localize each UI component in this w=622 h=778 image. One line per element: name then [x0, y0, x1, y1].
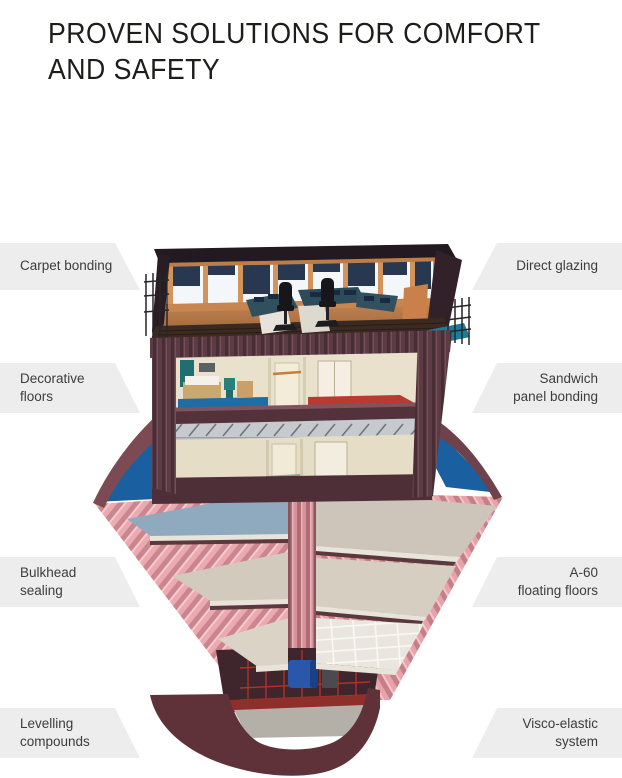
callout-label: system — [555, 733, 598, 752]
cabin-chair-base — [226, 390, 233, 399]
callout-label: Carpet bonding — [20, 257, 140, 276]
callout-label: floating floors — [518, 582, 598, 601]
accommodation-wall-left — [152, 338, 176, 494]
bridge-wheelhouse — [144, 244, 471, 358]
callout-direct-glazing: Direct glazing — [472, 243, 622, 290]
cabin-desk — [237, 381, 253, 397]
callout-label: A-60 — [569, 564, 598, 583]
callout-label: panel bonding — [513, 388, 598, 407]
page: PROVEN SOLUTIONS FOR COMFORT AND SAFETY — [0, 0, 622, 778]
callout-label: floors — [20, 388, 140, 407]
cabin-chair — [224, 378, 235, 390]
callout-visco-elastic-system: Visco-elastic system — [472, 708, 622, 758]
callout-a60-floating-floors: A-60 floating floors — [472, 557, 622, 607]
center-bulkhead — [288, 490, 316, 648]
cabin-wall-divider — [303, 357, 306, 408]
callout-label: Visco-elastic — [522, 715, 598, 734]
cabin-picture-frame — [199, 363, 215, 372]
engine-room-floor — [234, 705, 364, 738]
cabin-wall-divider — [268, 358, 271, 409]
callout-label: compounds — [20, 733, 140, 752]
callout-sandwich-panel-bonding: Sandwich panel bonding — [472, 363, 622, 413]
callout-label: sealing — [20, 582, 140, 601]
corridor-door — [275, 363, 299, 406]
accommodation-bottom-band — [152, 474, 434, 504]
callout-label: Sandwich — [539, 370, 598, 389]
cabin-bed-mattress — [185, 376, 219, 385]
center-bulkhead-edge — [314, 490, 317, 648]
callout-label: Direct glazing — [516, 257, 598, 276]
center-bulkhead-edge — [288, 490, 291, 648]
